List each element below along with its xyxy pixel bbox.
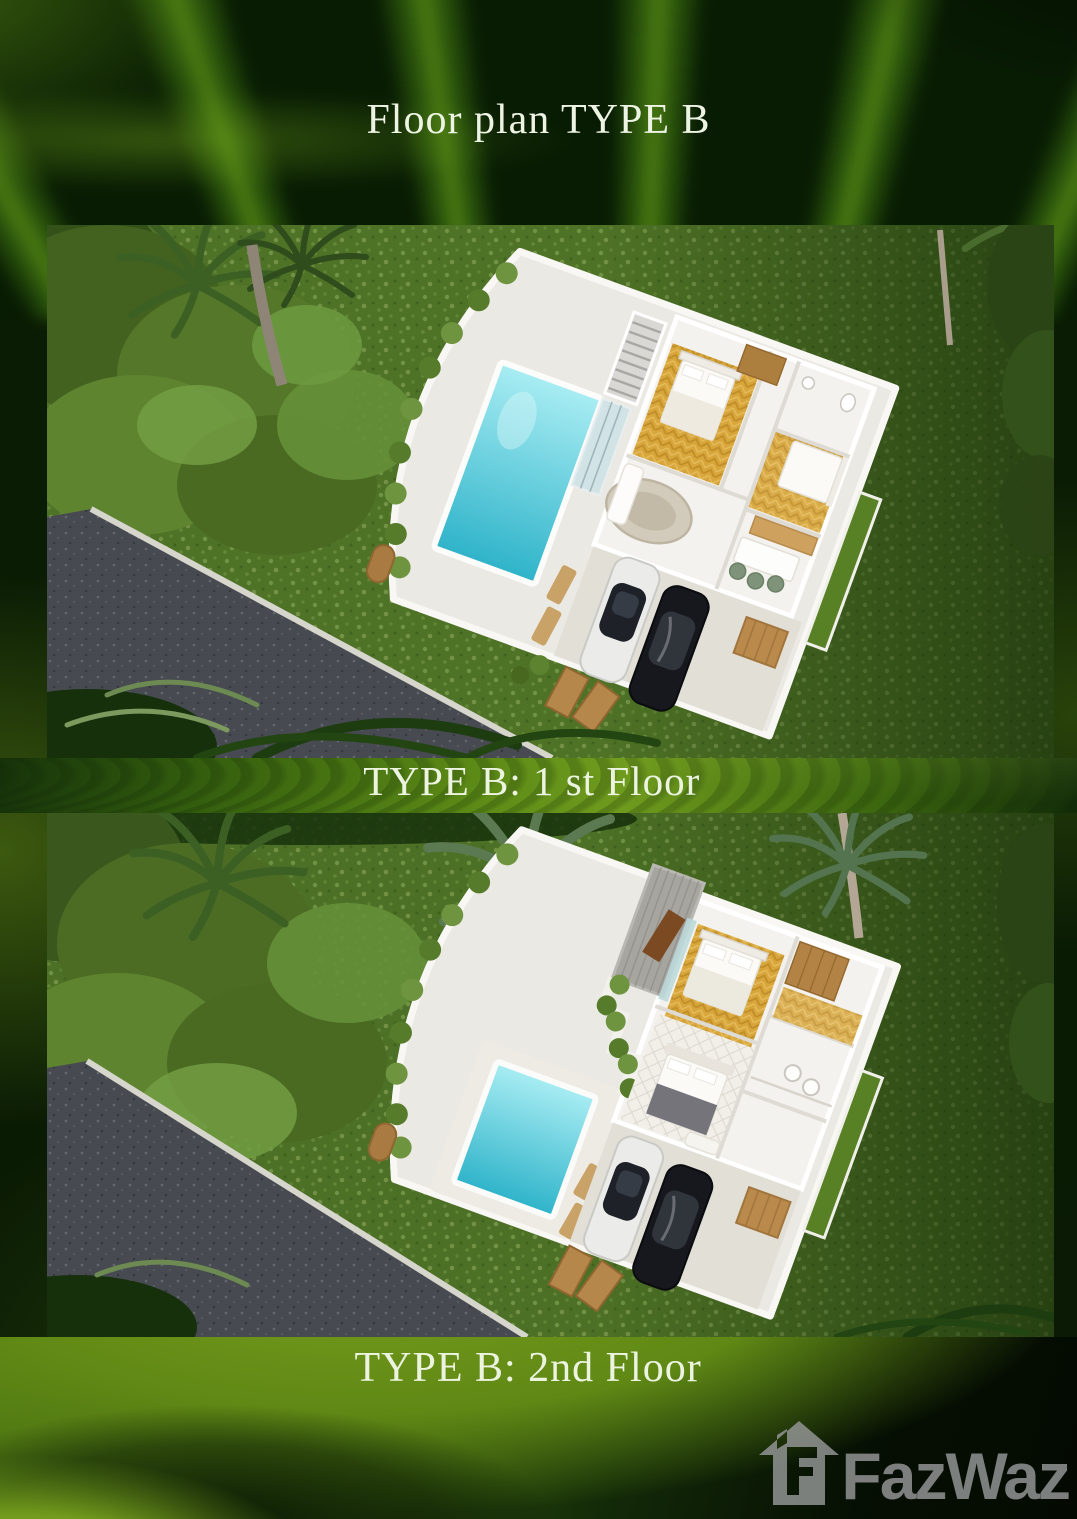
- house-icon: [757, 1419, 841, 1507]
- page-title: Floor plan TYPE B: [0, 96, 1077, 144]
- aerial-villa-render-2: [47, 813, 1054, 1337]
- watermark: FazWaz: [757, 1419, 1069, 1507]
- floor-plan-render-1st-floor: [47, 225, 1054, 758]
- poster: Floor plan TYPE B: [0, 0, 1077, 1519]
- aerial-villa-render-1: [47, 225, 1054, 758]
- floor-plan-render-2nd-floor: [47, 813, 1054, 1337]
- brand-text: FazWaz: [841, 1446, 1069, 1507]
- caption-second-floor: TYPE B: 2nd Floor: [354, 1344, 701, 1392]
- caption-first-floor: TYPE B: 1 st Floor: [363, 757, 700, 805]
